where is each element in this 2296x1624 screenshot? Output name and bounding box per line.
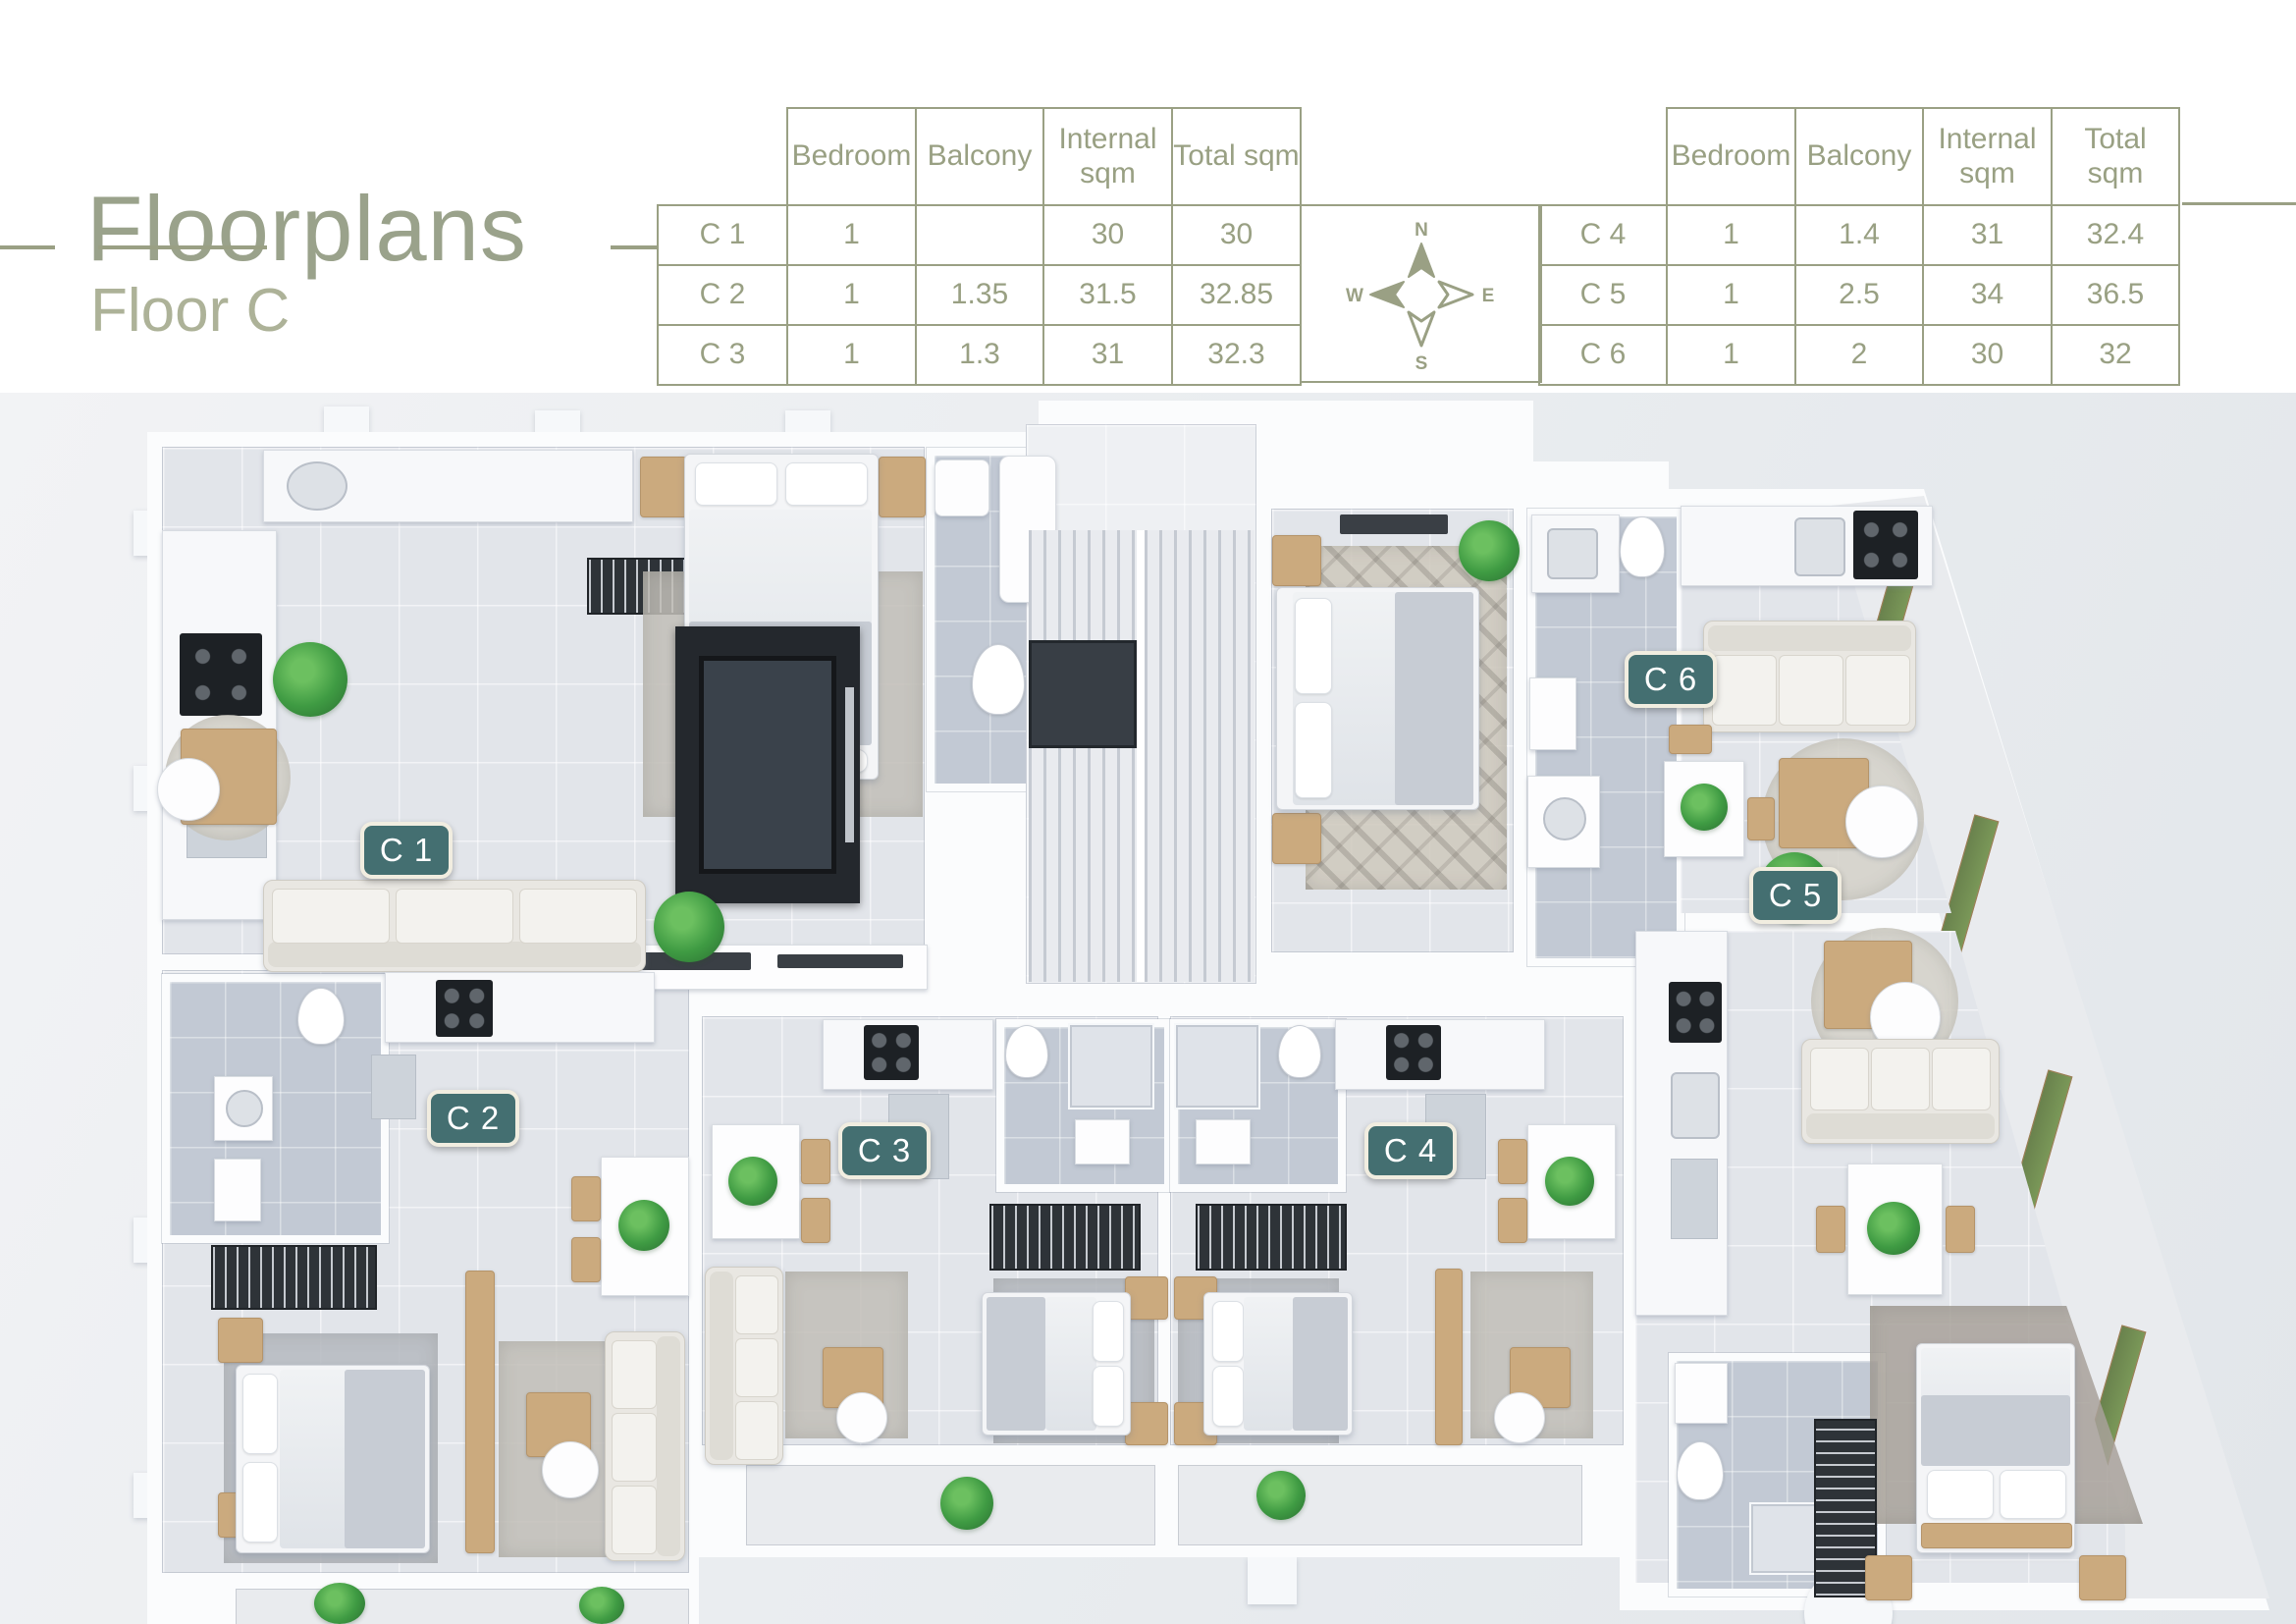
tv-console	[1340, 514, 1448, 534]
pillow	[1093, 1366, 1124, 1427]
value-cell: 30	[1043, 205, 1172, 265]
wall-stub	[324, 406, 369, 436]
kitchen-sink	[1671, 1072, 1720, 1139]
chair	[571, 1176, 601, 1221]
wardrobe	[1196, 1204, 1347, 1271]
title-dash-left-2	[98, 245, 267, 249]
apartment-label-c2: C 2	[427, 1090, 519, 1147]
unit-cell: C 1	[658, 205, 787, 265]
staircase-flight	[1029, 748, 1137, 982]
sofa-cushion	[612, 1413, 657, 1482]
sofa-cushion	[1871, 1048, 1930, 1110]
headboard	[1921, 1523, 2072, 1548]
duvet	[1045, 1297, 1096, 1431]
value-cell: 1.35	[916, 265, 1043, 325]
elevator-cab	[699, 656, 836, 874]
elevator	[675, 626, 860, 903]
value-cell: 31	[1043, 325, 1172, 385]
table-row: C 2 1 1.35 31.5 32.85	[658, 265, 1301, 325]
toilet	[1005, 1025, 1048, 1078]
pillow	[1093, 1301, 1124, 1362]
title-dash-right	[611, 245, 657, 249]
stove	[1669, 982, 1722, 1043]
unit-cell: C 6	[1539, 325, 1667, 385]
side-table	[836, 1392, 887, 1443]
unit-cell: C 5	[1539, 265, 1667, 325]
apartment-label-c1: C 1	[360, 822, 453, 879]
table-corner	[658, 108, 787, 205]
floorplan-page: Floorplans Floor C Bedroom Balcony Inter…	[0, 0, 2296, 1624]
value-cell: 32.4	[2052, 205, 2179, 265]
spec-table-left: Bedroom Balcony Internal sqm Total sqm C…	[657, 107, 1302, 386]
sofa	[263, 880, 646, 972]
stove	[436, 980, 493, 1037]
nightstand	[879, 457, 926, 517]
sofa-cushion	[1932, 1048, 1991, 1110]
compass-south-arrow-icon	[1409, 312, 1434, 346]
spec-table-right: Bedroom Balcony Internal sqm Total sqm C…	[1538, 107, 2180, 386]
title-dash-left-1	[0, 245, 55, 249]
wardrobe	[211, 1245, 377, 1310]
sofa-back	[657, 1336, 680, 1556]
value-cell: 1	[787, 325, 916, 385]
pillow	[242, 1374, 278, 1454]
side-table	[157, 758, 220, 821]
sofa-cushion	[1712, 655, 1777, 726]
sofa-cushion	[519, 889, 637, 944]
sofa-cushion	[612, 1486, 657, 1554]
bathroom-cabinet	[1529, 677, 1576, 750]
col-header-total: Total sqm	[1172, 108, 1301, 205]
elevator-door	[845, 687, 854, 842]
value-cell: 30	[1923, 325, 2052, 385]
wardrobe	[989, 1204, 1141, 1271]
value-cell: 32.85	[1172, 265, 1301, 325]
blanket	[987, 1297, 1045, 1431]
pillow	[242, 1462, 278, 1543]
nightstand	[1125, 1276, 1168, 1320]
chair	[1669, 725, 1712, 754]
pillow	[1295, 702, 1332, 798]
chair	[801, 1139, 830, 1184]
sofa	[1801, 1039, 2000, 1144]
value-cell: 2.5	[1795, 265, 1923, 325]
compass-east-label: E	[1482, 286, 1495, 306]
pillow	[1295, 598, 1332, 694]
bathroom-sink	[1675, 1363, 1728, 1424]
plant	[273, 642, 347, 717]
stove	[1386, 1025, 1441, 1080]
shower	[1749, 1502, 1824, 1575]
staircase-landing	[1029, 640, 1137, 748]
sofa-cushion	[735, 1338, 778, 1397]
pillow	[695, 462, 777, 506]
toilet	[1620, 516, 1665, 577]
plant	[1459, 520, 1520, 581]
wall-stub	[1248, 1557, 1297, 1604]
bathroom-sink	[214, 1159, 261, 1221]
unit-cell: C 3	[658, 325, 787, 385]
unit-c2-bathroom	[162, 974, 389, 1243]
bed	[236, 1365, 430, 1553]
chair	[1498, 1139, 1527, 1184]
staircase-flight	[1029, 530, 1137, 640]
pillow	[785, 462, 868, 506]
plant	[1867, 1202, 1920, 1255]
blanket	[1395, 592, 1473, 805]
nightstand	[218, 1318, 263, 1363]
value-cell: 1	[1667, 205, 1795, 265]
sofa-cushion	[735, 1401, 778, 1460]
table-row: C 3 1 1.3 31 32.3	[658, 325, 1301, 385]
plant	[654, 892, 724, 962]
blanket	[1293, 1297, 1348, 1431]
duvet	[1244, 1297, 1293, 1431]
compass-north-arrow-icon	[1409, 244, 1434, 277]
sofa-cushion	[272, 889, 390, 944]
chair	[1498, 1198, 1527, 1243]
unit-cell: C 4	[1539, 205, 1667, 265]
nightstand	[1125, 1402, 1168, 1445]
plant	[579, 1587, 624, 1624]
table-row: C 6 1 2 30 32	[1539, 325, 2179, 385]
value-cell: 32.3	[1172, 325, 1301, 385]
bed	[982, 1292, 1131, 1435]
unit-cell: C 2	[658, 265, 787, 325]
pillow	[1212, 1366, 1244, 1427]
value-cell: 1	[1667, 265, 1795, 325]
bed	[1916, 1343, 2075, 1553]
col-header-balcony: Balcony	[1795, 108, 1923, 205]
sofa-back	[1708, 625, 1911, 651]
col-header-internal: Internal sqm	[1043, 108, 1172, 205]
nightstand	[2079, 1555, 2126, 1600]
table-row: C 4 1 1.4 31 32.4	[1539, 205, 2179, 265]
stove	[864, 1025, 919, 1080]
page-subtitle: Floor C	[90, 281, 290, 342]
pillow	[2000, 1470, 2066, 1519]
toilet	[1278, 1025, 1321, 1078]
plant	[1545, 1157, 1594, 1206]
washer-door	[226, 1090, 263, 1127]
compass-east-arrow-icon	[1439, 282, 1472, 307]
compass-west-label: W	[1346, 286, 1363, 306]
kitchen-sink	[287, 461, 347, 511]
plant	[728, 1157, 777, 1206]
value-cell: 2	[1795, 325, 1923, 385]
value-cell: 31	[1923, 205, 2052, 265]
stove	[1853, 511, 1918, 579]
side-table	[542, 1441, 599, 1498]
value-cell: 36.5	[2052, 265, 2179, 325]
plant	[940, 1477, 993, 1530]
value-cell: 34	[1923, 265, 2052, 325]
sofa-cushion	[1810, 1048, 1869, 1110]
sofa-cushion	[396, 889, 513, 944]
sofa-back	[268, 942, 641, 967]
plant	[1681, 784, 1728, 831]
value-cell: 1	[787, 205, 916, 265]
desk-accessory	[777, 954, 903, 968]
bathroom-sink	[1547, 528, 1598, 579]
chair	[801, 1198, 830, 1243]
bathroom-sink	[934, 460, 989, 516]
sofa-cushion	[1845, 655, 1910, 726]
sofa-back	[1806, 1113, 1995, 1139]
sofa-cushion	[735, 1275, 778, 1334]
value-cell	[916, 205, 1043, 265]
sofa	[705, 1267, 783, 1465]
sofa-cushion	[612, 1340, 657, 1409]
staircase-flight	[1145, 530, 1255, 982]
page-title: Floorplans	[86, 183, 527, 275]
side-table	[1845, 785, 1918, 858]
chair	[1946, 1206, 1975, 1253]
kitchen-counter	[385, 972, 655, 1043]
chair	[1747, 797, 1775, 840]
toilet	[1677, 1441, 1724, 1500]
stair-divider	[1137, 530, 1145, 982]
value-cell: 1	[1667, 325, 1795, 385]
bathroom-sink	[1196, 1119, 1251, 1164]
pillow	[1212, 1301, 1244, 1362]
nightstand	[640, 457, 687, 517]
compass-rose-icon: N S W E	[1343, 216, 1500, 373]
chair	[571, 1237, 601, 1282]
stove	[180, 633, 262, 716]
value-cell: 1.3	[916, 325, 1043, 385]
tv-console	[465, 1271, 495, 1553]
plant	[1256, 1471, 1306, 1520]
compass-west-arrow-icon	[1370, 282, 1404, 307]
bed	[1276, 587, 1479, 810]
compass-cell: N S W E	[1300, 204, 1542, 383]
tv-console	[1435, 1269, 1463, 1445]
value-cell: 31.5	[1043, 265, 1172, 325]
bathroom-sink	[1075, 1119, 1130, 1164]
blanket	[1921, 1395, 2070, 1466]
col-header-balcony: Balcony	[916, 108, 1043, 205]
toilet	[297, 988, 345, 1045]
value-cell: 30	[1172, 205, 1301, 265]
kitchen-sink	[1794, 517, 1845, 576]
col-header-internal: Internal sqm	[1923, 108, 2052, 205]
apartment-label-c6: C 6	[1625, 651, 1717, 708]
compass-south-label: S	[1415, 353, 1428, 373]
sofa	[605, 1331, 685, 1561]
washer-door	[1543, 797, 1586, 840]
apartment-label-c5: C 5	[1749, 867, 1842, 924]
chair	[1816, 1206, 1845, 1253]
table-corner	[1539, 108, 1667, 205]
plant	[314, 1583, 365, 1624]
sofa-cushion	[1779, 655, 1843, 726]
apartment-label-c3: C 3	[838, 1122, 931, 1179]
unit-c4-balcony	[1178, 1465, 1582, 1545]
kitchen-cabinet	[1671, 1159, 1718, 1239]
col-header-bedroom: Bedroom	[1667, 108, 1795, 205]
sofa-back	[710, 1272, 733, 1460]
shower	[1174, 1023, 1260, 1110]
plant	[618, 1200, 669, 1251]
side-table	[1494, 1392, 1545, 1443]
pillow	[1927, 1470, 1994, 1519]
blanket	[345, 1370, 425, 1548]
col-header-total: Total sqm	[2052, 108, 2179, 205]
value-cell: 1	[787, 265, 916, 325]
bed	[1203, 1292, 1353, 1435]
shower	[1068, 1023, 1154, 1110]
table-extension-line	[2182, 202, 2296, 205]
sofa	[1703, 621, 1916, 732]
table-row: C 1 1 30 30	[658, 205, 1301, 265]
nightstand	[1272, 535, 1321, 586]
nightstand	[1865, 1555, 1912, 1600]
apartment-label-c4: C 4	[1364, 1122, 1457, 1179]
value-cell: 32	[2052, 325, 2179, 385]
nightstand	[1272, 813, 1321, 864]
kitchen-cabinet	[371, 1055, 416, 1119]
table-row: C 5 1 2.5 34 36.5	[1539, 265, 2179, 325]
compass-north-label: N	[1415, 220, 1428, 241]
value-cell: 1.4	[1795, 205, 1923, 265]
col-header-bedroom: Bedroom	[787, 108, 916, 205]
